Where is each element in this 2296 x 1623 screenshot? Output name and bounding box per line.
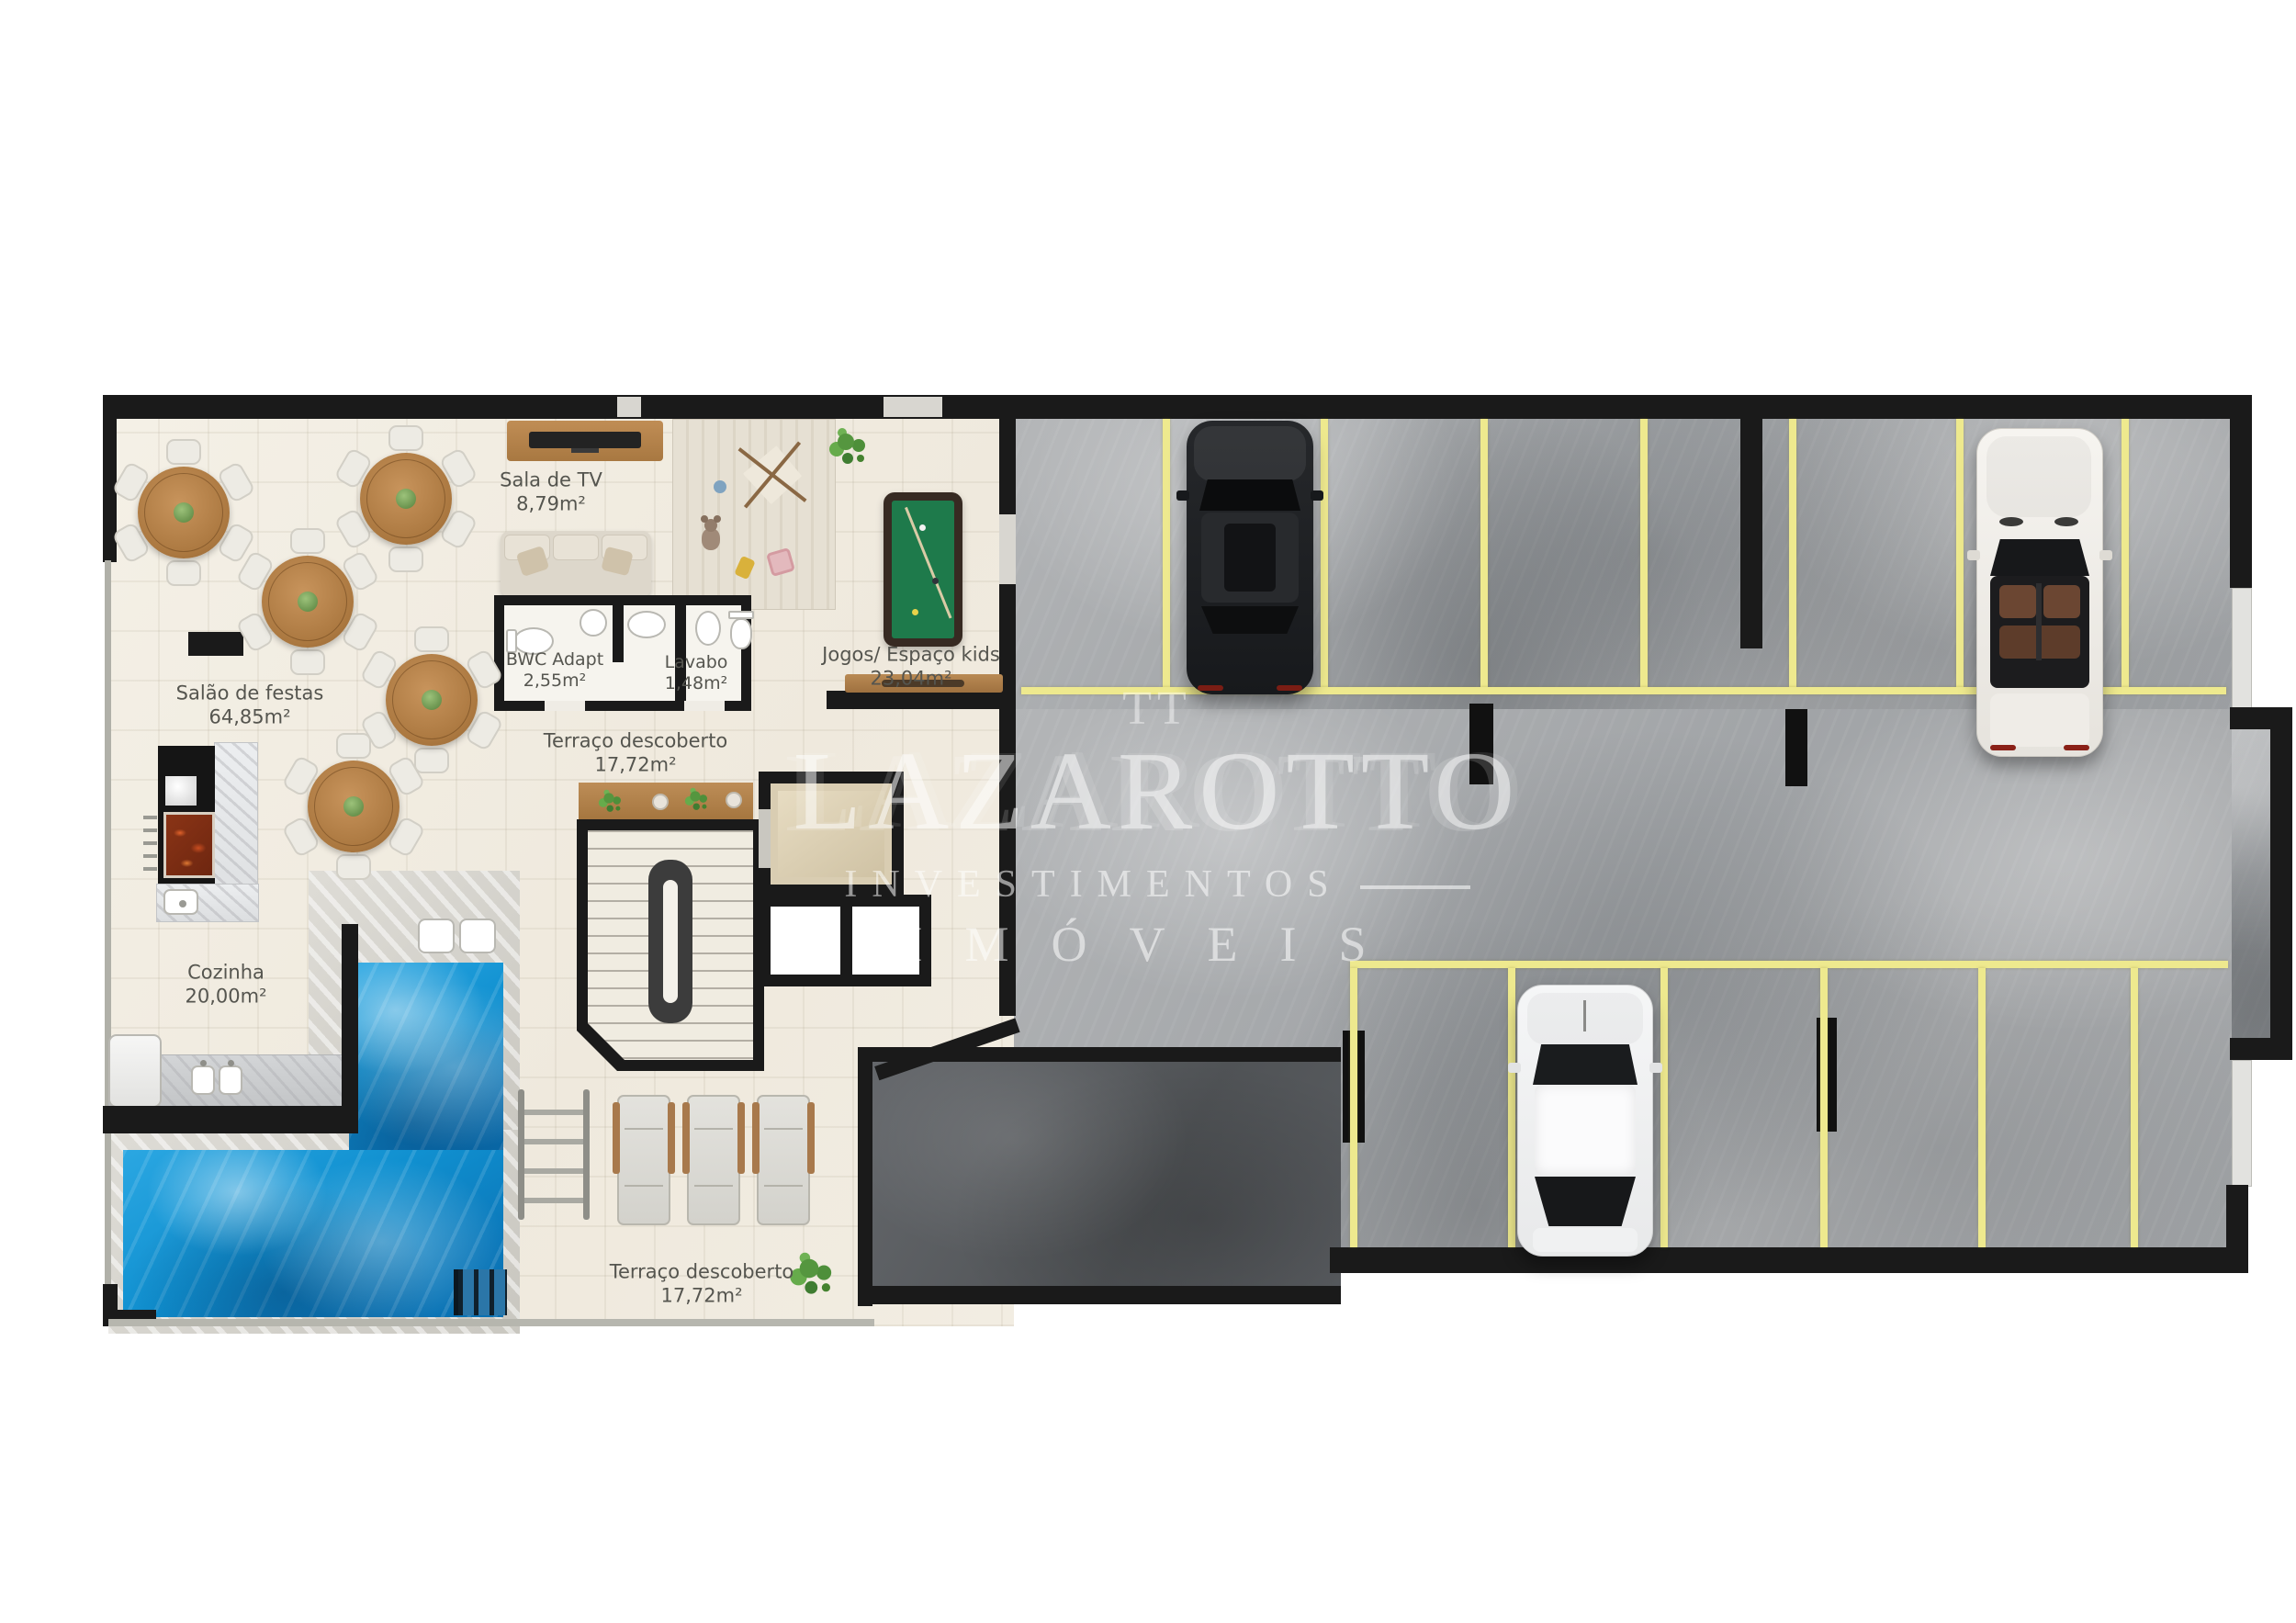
tv-icon xyxy=(529,432,641,448)
parking-line xyxy=(2122,419,2129,687)
wall-right-bump xyxy=(2270,707,2292,1060)
toy xyxy=(766,547,795,577)
wall-right-top xyxy=(2230,395,2252,588)
parking-line xyxy=(1978,968,1986,1247)
garage-column xyxy=(1785,709,1807,786)
parking-line xyxy=(1789,419,1796,687)
barbecue-grill xyxy=(158,746,215,884)
elevator-door xyxy=(759,809,771,868)
grill-shelf xyxy=(143,854,157,858)
parking-line xyxy=(1660,968,1668,1247)
garage-floor-bump xyxy=(2232,709,2276,1060)
parking-line xyxy=(1956,419,1964,687)
chair xyxy=(290,528,325,554)
room-label-jogos-kids: Jogos/ Espaço kids23,04m² xyxy=(822,643,1000,690)
room-label-sala-tv: Sala de TV8,79m² xyxy=(500,468,602,515)
kitchen-sink xyxy=(163,889,198,915)
chair xyxy=(336,733,371,759)
chair xyxy=(388,547,423,572)
chair xyxy=(414,626,449,652)
chair xyxy=(166,560,201,586)
core-balcony-shelf xyxy=(579,783,753,824)
sun-lounger xyxy=(687,1095,740,1225)
parking-line xyxy=(1350,968,1357,1247)
staircase xyxy=(577,819,764,1071)
sun-lounger xyxy=(757,1095,810,1225)
refrigerator xyxy=(108,1034,162,1108)
wall-ramp-left xyxy=(858,1047,872,1306)
pool-equipment-box xyxy=(459,919,496,953)
grill-shelf xyxy=(143,816,157,819)
pool-equipment-box xyxy=(418,919,455,953)
parking-line xyxy=(2131,968,2138,1247)
sofa xyxy=(501,531,651,597)
wall-kitchen-right xyxy=(342,924,358,1106)
pool-water-arm xyxy=(349,963,503,1152)
door-top-wall xyxy=(884,397,942,417)
white-convertible xyxy=(1976,428,2103,757)
wall-top xyxy=(103,395,2252,419)
potted-plant xyxy=(690,791,700,801)
wall-right-step-in xyxy=(2230,1038,2292,1060)
cup xyxy=(652,794,669,810)
wall-ramp-bottom xyxy=(858,1286,1341,1304)
service-shafts xyxy=(759,895,931,986)
room-label-terraco-inferior: Terraço descoberto17,72m² xyxy=(610,1260,794,1307)
sink xyxy=(580,609,607,637)
parking-line xyxy=(1350,961,2228,968)
pool-billiards-table xyxy=(884,492,962,647)
black-car xyxy=(1187,421,1313,694)
garage-column xyxy=(1469,704,1493,784)
elevator xyxy=(759,772,904,896)
sink xyxy=(627,611,666,638)
window-right-upper xyxy=(2232,588,2252,709)
door-top-wall xyxy=(617,397,641,417)
room-label-lavabo: Lavabo1,48m² xyxy=(665,652,728,694)
kids-play-rug xyxy=(672,419,836,610)
sink xyxy=(695,611,721,646)
grill-shelf xyxy=(143,867,157,871)
chair xyxy=(388,425,423,451)
potted-plant xyxy=(800,1259,819,1279)
parking-line xyxy=(1480,419,1488,687)
grill-shelf xyxy=(143,828,157,832)
garage-ramp xyxy=(872,1060,1341,1286)
wall-garage-bottom xyxy=(1330,1247,2248,1273)
dining-table xyxy=(262,556,354,648)
chair xyxy=(290,649,325,675)
room-label-salao-festas: Salão de festas64,85m² xyxy=(176,682,324,728)
dining-table xyxy=(308,761,400,852)
room-label-cozinha: Cozinha20,00m² xyxy=(186,961,267,1008)
floor-plan-canvas: Sala de TV8,79m² Salão de festas64,85m² … xyxy=(0,0,2296,1623)
kite-toy xyxy=(734,436,811,513)
terrace-bottom-edge xyxy=(108,1319,874,1326)
wall-shaft-divider xyxy=(840,907,852,975)
wall-ramp-top xyxy=(858,1047,1341,1062)
kitchen-double-sink xyxy=(191,1060,246,1100)
wall-left-terrace-edge xyxy=(105,560,111,1323)
dining-table xyxy=(138,467,230,558)
pool-water-main xyxy=(123,1150,503,1317)
teddy-bear-toy xyxy=(699,519,723,550)
pool-ladder xyxy=(518,1089,590,1220)
toilet xyxy=(730,618,752,649)
grill-shelf xyxy=(143,841,157,845)
room-label-bwc-adapt: BWC Adapt2,55m² xyxy=(506,649,603,692)
wall-kitchen-bottom xyxy=(103,1106,358,1133)
toy xyxy=(714,480,726,493)
wall-garage-mid-divider xyxy=(1740,395,1762,648)
room-label-terraco-superior: Terraço descoberto17,72m² xyxy=(544,729,728,776)
dining-table xyxy=(386,654,478,746)
window-right-lower xyxy=(2232,1060,2252,1187)
dining-table xyxy=(360,453,452,545)
wall-games-room-bottom xyxy=(827,691,1014,709)
potted-plant xyxy=(603,793,613,803)
tv-console xyxy=(507,421,663,461)
stair-stringer xyxy=(648,860,692,1023)
parking-line xyxy=(1820,968,1828,1247)
parking-line xyxy=(1321,419,1328,687)
toilet-tank xyxy=(728,611,754,619)
sun-lounger xyxy=(617,1095,670,1225)
door-divider-wall xyxy=(999,514,1016,584)
white-sedan xyxy=(1517,985,1653,1257)
chair xyxy=(166,439,201,465)
pool-steps xyxy=(454,1269,507,1315)
wall-bathroom-divider xyxy=(613,605,624,662)
parking-line xyxy=(1508,968,1515,1247)
toy xyxy=(734,556,756,580)
chair xyxy=(414,748,449,773)
wall-right-bottom xyxy=(2226,1185,2248,1273)
cup xyxy=(726,792,742,808)
parking-line xyxy=(1163,419,1170,687)
potted-plant xyxy=(838,434,854,450)
chair xyxy=(336,854,371,880)
wall-stub-hall xyxy=(188,632,243,656)
parking-line xyxy=(1640,419,1648,687)
